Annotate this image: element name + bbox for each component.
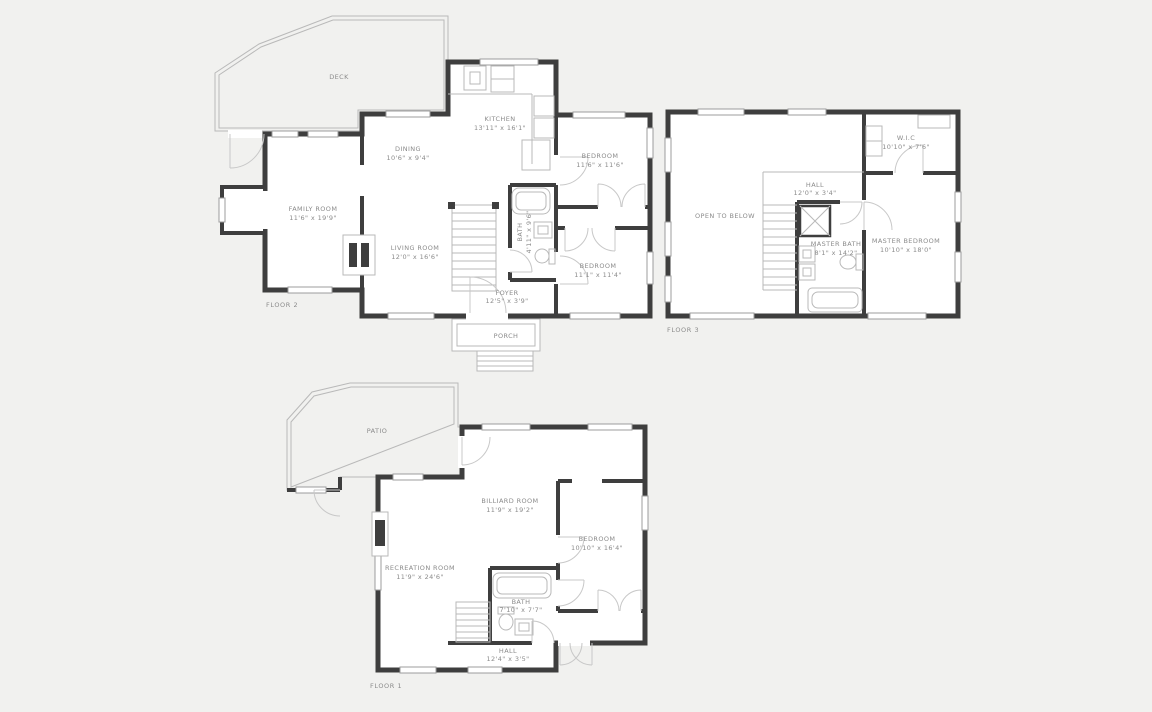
room-label-deck: DECK [329, 73, 349, 81]
room-label-patio: PATIO [367, 427, 387, 435]
room-label-master-bath-name: MASTER BATH [811, 240, 862, 248]
room-label-porch: PORCH [494, 332, 519, 340]
room-label-master-bedroom-dims: 10'10" x 18'0" [880, 246, 932, 254]
room-label-master-bath-dims: 8'1" x 14'2" [814, 249, 857, 257]
room-label-kitchen-name: KITCHEN [485, 115, 516, 123]
room-label-bath1-name: BATH [512, 598, 531, 606]
room-label-hall1-name: HALL [499, 647, 517, 655]
room-label-open-to-below: OPEN TO BELOW [695, 212, 755, 220]
floor2-label: FLOOR 2 [266, 301, 298, 309]
room-label-bath2-dims: 4'11" x 9'6" [525, 210, 533, 253]
floor3-label: FLOOR 3 [667, 326, 699, 334]
room-label-bedroom-lower-dims: 11'1" x 11'4" [574, 271, 622, 279]
room-label-bedroom1f-dims: 10'10" x 16'4" [571, 544, 623, 552]
floor3-plan: OPEN TO BELOW HALL 12'0" x 3'4" W.I.C 10… [665, 109, 961, 334]
room-label-wic-dims: 10'10" x 7'6" [882, 143, 930, 151]
room-label-rec-dims: 11'9" x 24'6" [396, 573, 444, 581]
room-label-living-dims: 12'0" x 16'6" [391, 253, 439, 261]
room-label-billiard-dims: 11'9" x 19'2" [486, 506, 534, 514]
room-label-master-bedroom-name: MASTER BEDROOM [872, 237, 940, 245]
floor1-plan: PATIO BILLIARD ROOM 11'9" x 19'2" BEDROO… [287, 383, 648, 690]
room-label-bedroom-lower-name: BEDROOM [580, 262, 617, 270]
room-label-family-name: FAMILY ROOM [289, 205, 338, 213]
room-label-hall3-dims: 12'0" x 3'4" [793, 189, 836, 197]
room-label-hall1-dims: 12'4" x 3'5" [486, 655, 529, 663]
floor2-porch-outline [452, 319, 540, 371]
room-label-bedroom1f-name: BEDROOM [579, 535, 616, 543]
room-label-bath1-dims: 7'10" x 7'7" [499, 606, 542, 614]
room-label-kitchen-dims: 13'11" x 16'1" [474, 124, 526, 132]
room-label-dining-dims: 10'6" x 9'4" [386, 154, 429, 162]
room-label-bedroom-upper-name: BEDROOM [582, 152, 619, 160]
floor1-fireplace [372, 512, 388, 556]
floor1-label: FLOOR 1 [370, 682, 402, 690]
floor2-plan: DECK KITCHEN 13'11" x 16'1" DINING 10'6"… [215, 16, 653, 371]
room-label-wic-name: W.I.C [897, 134, 915, 142]
room-label-hall3-name: HALL [806, 181, 824, 189]
room-label-bath2-name: BATH [516, 223, 524, 242]
room-label-bedroom-upper-dims: 11'6" x 11'6" [576, 161, 624, 169]
room-label-rec-name: RECREATION ROOM [385, 564, 455, 572]
floorplan-image: DECK KITCHEN 13'11" x 16'1" DINING 10'6"… [0, 0, 1152, 712]
room-label-foyer-dims: 12'5" x 3'9" [485, 297, 528, 305]
room-label-living-name: LIVING ROOM [391, 244, 440, 252]
floor2-bay-nook [222, 187, 265, 233]
room-label-dining-name: DINING [395, 145, 421, 153]
room-label-billiard-name: BILLIARD ROOM [481, 497, 538, 505]
floor1-patio-outline [287, 383, 462, 490]
floor2-fireplace [343, 235, 375, 275]
floorplan-page: DECK KITCHEN 13'11" x 16'1" DINING 10'6"… [0, 0, 1152, 712]
room-label-family-dims: 11'6" x 19'9" [289, 214, 337, 222]
room-label-foyer-name: FOYER [495, 289, 518, 297]
